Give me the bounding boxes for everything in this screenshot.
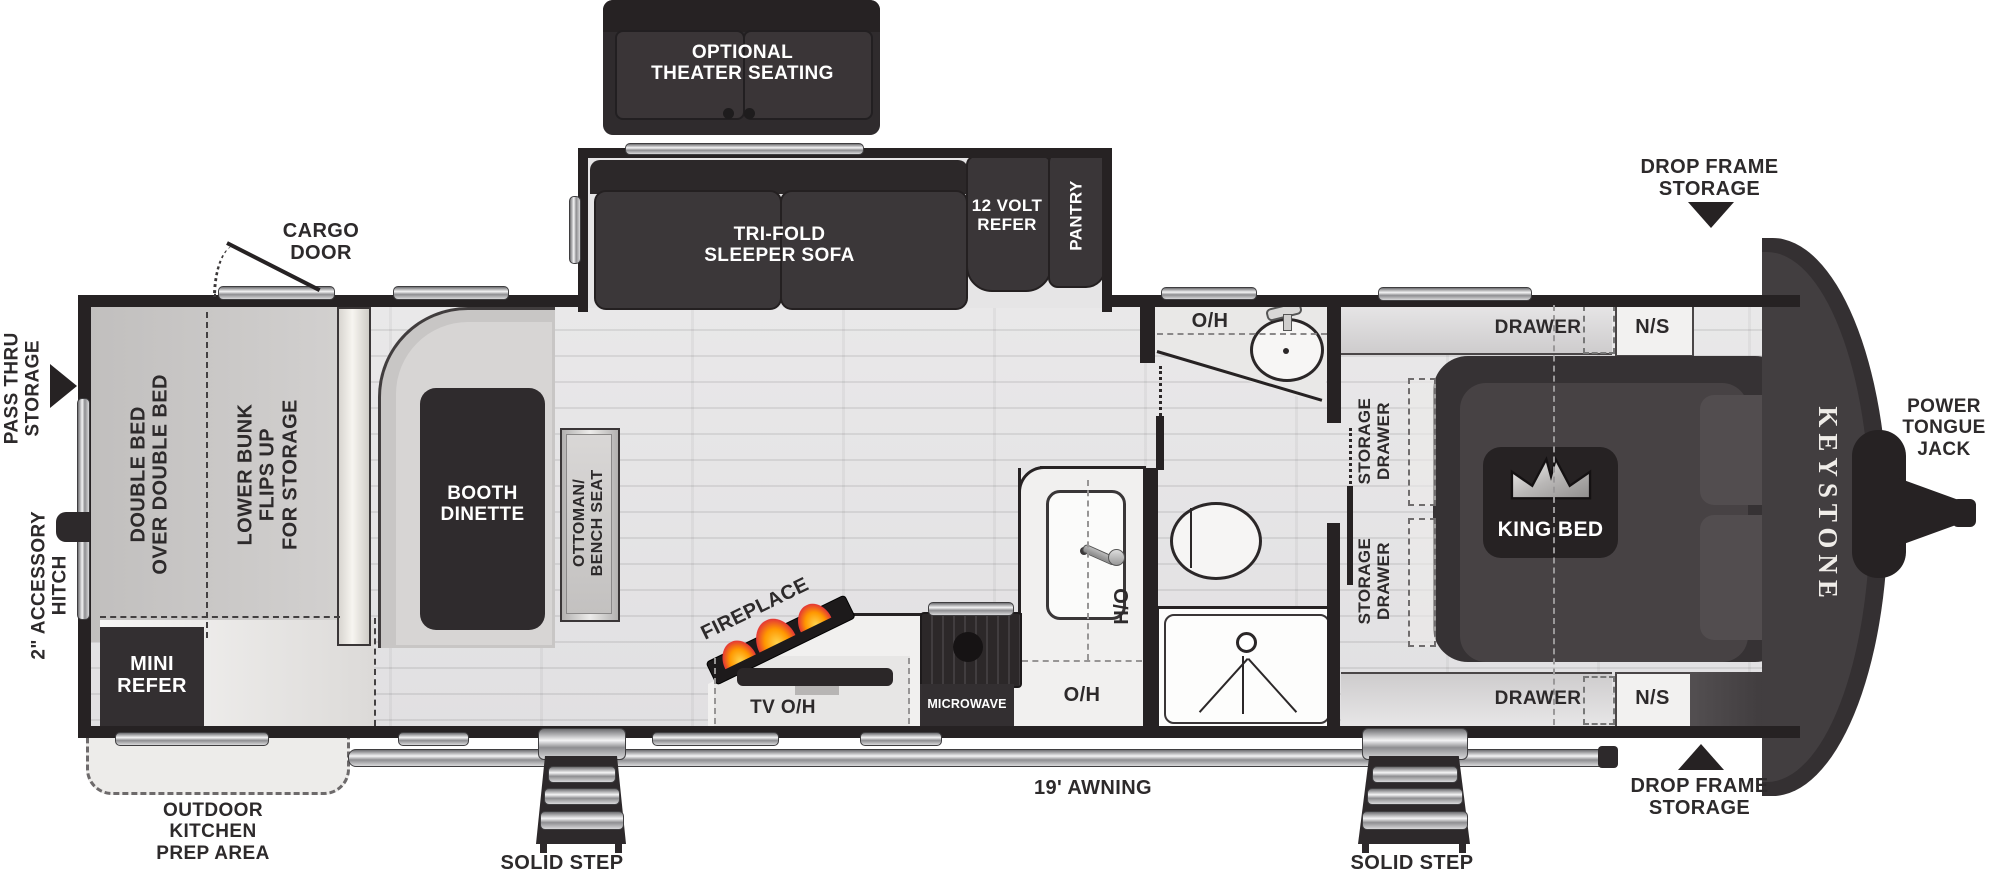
slide-out-wall-right [1102, 148, 1112, 312]
theater-cupholder-icon [723, 108, 734, 119]
bath-door-swing-dotted [1159, 366, 1162, 416]
shower-spray-line [1242, 656, 1244, 714]
awning-label: 19' AWNING [1023, 777, 1163, 799]
step-tread [1362, 811, 1468, 830]
sink-cabinet-dashed-line-h [1022, 660, 1142, 662]
awning-end-cap [1598, 746, 1618, 768]
step-tread [1372, 766, 1458, 783]
toilet [1170, 502, 1262, 580]
twelve-volt-refer-label: 12 VOLT REFER [964, 196, 1050, 234]
storage-drawer-label-2: STORAGE DRAWER [1355, 526, 1393, 636]
tv-oh-label: TV O/H [733, 697, 833, 718]
toilet-tank-line [1190, 508, 1192, 568]
drawer-top-label: DRAWER [1468, 317, 1608, 338]
tv-mount [795, 686, 839, 695]
window [860, 732, 942, 746]
bath-right-wall-upper [1327, 307, 1341, 423]
cargo-door-swing-arc [213, 245, 236, 297]
kitchen-bath-wall [1143, 468, 1158, 728]
pantry-label: PANTRY [1066, 161, 1085, 271]
sink-cabinet-dashed-line [1087, 480, 1089, 660]
arrow-right-icon [50, 364, 77, 408]
drawer-bottom-label: DRAWER [1468, 688, 1608, 709]
showerhead-icon [1236, 632, 1257, 653]
dinette-table-label: BOOTH DINETTE [422, 483, 543, 526]
entry-step-platform [538, 728, 626, 760]
solid-step-left-label: SOLID STEP [492, 852, 632, 874]
ns-top-label: N/S [1615, 316, 1690, 338]
entry-wall-stub [1140, 307, 1155, 363]
ns-bottom-label: N/S [1615, 687, 1690, 709]
shower-pan [1164, 614, 1330, 724]
ottoman-label: OTTOMAN/ BENCH SEAT [571, 448, 607, 598]
pass-thru-storage-door [77, 398, 90, 620]
window [398, 732, 469, 746]
sleeper-sofa-back [590, 160, 968, 194]
cabinet-dashed-line [908, 658, 910, 724]
bath-door-leaf [1156, 416, 1164, 470]
storage-drawer-front [1408, 378, 1436, 506]
stove-burner-icon [953, 632, 983, 662]
king-bed-label: KING BED [1483, 518, 1618, 542]
theater-seating-back [603, 0, 880, 32]
theater-cupholder-icon [744, 108, 755, 119]
step-tread [548, 766, 616, 783]
floorplan: DOUBLE BED OVER DOUBLE BED LOWER BUNK FL… [0, 0, 2000, 880]
storage-drawer-label-1: STORAGE DRAWER [1355, 386, 1393, 496]
keystone-logo: KEYSTONE [1813, 370, 1843, 640]
outdoor-kitchen-stitch-line-vertical [374, 618, 376, 726]
bed-slide-dashed-centerline [1553, 305, 1555, 725]
bath-right-wall-lower [1327, 523, 1340, 728]
mini-refer-label: MINI REFER [102, 653, 202, 698]
cabinet-dashed-line [714, 658, 716, 724]
power-tongue-jack-label: POWER TONGUE JACK [1888, 396, 2000, 460]
storage-drawer-front [1408, 518, 1436, 647]
bunk-divider-dashed-line [206, 312, 208, 638]
theater-seating-label: OPTIONAL THEATER SEATING [615, 42, 870, 85]
lower-bunk-label: LOWER BUNK FLIPS UP FOR STORAGE [234, 330, 301, 620]
window [652, 732, 779, 746]
arrow-up-icon [1678, 744, 1724, 770]
microwave-label: MICROWAVE [920, 697, 1014, 711]
bedroom-door-track-dotted [1349, 428, 1352, 484]
drop-frame-storage-top-label: DROP FRAME STORAGE [1622, 156, 1797, 201]
range-hood [928, 602, 1014, 616]
outdoor-kitchen-door [115, 732, 269, 746]
entry-step-platform [1362, 728, 1468, 760]
window [1161, 287, 1257, 300]
tongue-jack-cone [1898, 478, 1958, 546]
wardrobe [337, 307, 371, 646]
cargo-door-label: CARGO DOOR [256, 220, 386, 265]
bath-oh-label: O/H [1180, 310, 1240, 332]
tv [737, 668, 893, 686]
sleeper-sofa-label: TRI-FOLD SLEEPER SOFA [652, 224, 907, 267]
accessory-hitch-label: 2" ACCESSORY HITCH [29, 485, 72, 685]
window [1378, 287, 1532, 301]
window [393, 286, 509, 300]
drop-frame-storage-bottom-label: DROP FRAME STORAGE [1612, 775, 1787, 820]
outdoor-kitchen-label: OUTDOOR KITCHEN PREP AREA [123, 800, 303, 864]
slide-window-side [569, 196, 581, 264]
kitchen-oh-label: O/H [1052, 684, 1112, 706]
step-tread [544, 788, 620, 805]
step-tread [1367, 788, 1463, 805]
arrow-down-icon [1688, 202, 1734, 228]
bath-faucet-stub-icon [1283, 314, 1292, 331]
counter-edge-sink-top [1040, 466, 1146, 469]
pass-thru-storage-label: PASS THRU STORAGE [2, 323, 45, 453]
step-tread [540, 811, 624, 830]
bath-sink-drain-icon [1283, 348, 1289, 354]
solid-step-right-label: SOLID STEP [1342, 852, 1482, 874]
bedroom-door-track [1347, 486, 1353, 585]
double-bed-label: DOUBLE BED OVER DOUBLE BED [128, 329, 173, 619]
tongue-jack-tip [1952, 499, 1976, 527]
vanity-dashed-line [1157, 333, 1327, 335]
faucet-knob-icon [1108, 549, 1125, 566]
crown-icon [1503, 453, 1599, 503]
slide-window [625, 143, 864, 155]
ho-label: H/O [1111, 581, 1133, 631]
